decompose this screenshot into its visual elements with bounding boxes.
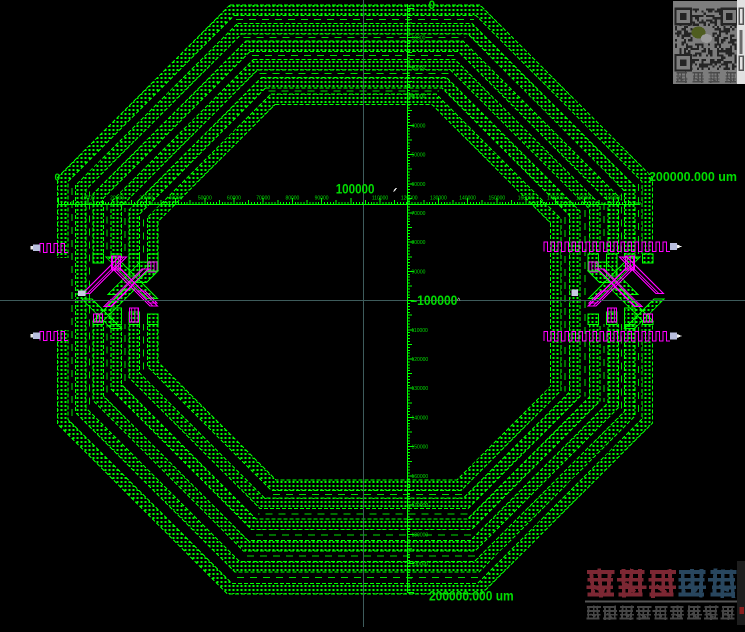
svg-text:160000: 160000	[518, 196, 535, 202]
svg-text:130000: 130000	[412, 386, 429, 392]
svg-text:90000: 90000	[412, 269, 426, 275]
svg-text:200000.000 um: 200000.000 um	[649, 169, 737, 184]
svg-text:10000: 10000	[412, 36, 426, 42]
svg-text:30000: 30000	[412, 94, 426, 100]
svg-text:150000: 150000	[412, 445, 429, 451]
svg-text:60000: 60000	[412, 182, 426, 188]
svg-text:10000: 10000	[81, 196, 95, 202]
svg-text:110000: 110000	[412, 328, 429, 334]
svg-text:0: 0	[55, 173, 61, 184]
svg-text:120000: 120000	[412, 357, 429, 363]
svg-text:180000: 180000	[412, 532, 429, 538]
svg-text:160000: 160000	[412, 474, 429, 480]
svg-text:50000: 50000	[412, 153, 426, 159]
svg-text:190000: 190000	[412, 562, 429, 568]
svg-text:100000: 100000	[336, 181, 375, 197]
svg-text:80000: 80000	[285, 196, 299, 202]
svg-text:170000: 170000	[412, 503, 429, 509]
svg-text:70000: 70000	[256, 196, 270, 202]
svg-text:190000: 190000	[605, 196, 622, 202]
svg-text:70000: 70000	[412, 211, 426, 217]
svg-text:130000: 130000	[430, 196, 447, 202]
svg-text:200000.000 um: 200000.000 um	[429, 588, 514, 604]
svg-text:–100000: –100000	[410, 292, 457, 308]
svg-text:30000: 30000	[139, 196, 153, 202]
svg-text:50000: 50000	[198, 196, 212, 202]
svg-text:170000: 170000	[547, 196, 564, 202]
svg-text:20000: 20000	[110, 196, 124, 202]
svg-text:80000: 80000	[412, 240, 426, 246]
svg-text:140000: 140000	[459, 196, 476, 202]
svg-text:60000: 60000	[227, 196, 241, 202]
svg-text:40000: 40000	[169, 196, 183, 202]
svg-text:20000: 20000	[412, 65, 426, 71]
svg-text:90000: 90000	[315, 196, 329, 202]
svg-text:40000: 40000	[412, 123, 426, 129]
svg-text:150000: 150000	[488, 196, 505, 202]
svg-text:0: 0	[429, 0, 436, 12]
svg-text:180000: 180000	[576, 196, 593, 202]
svg-text:140000: 140000	[412, 415, 429, 421]
